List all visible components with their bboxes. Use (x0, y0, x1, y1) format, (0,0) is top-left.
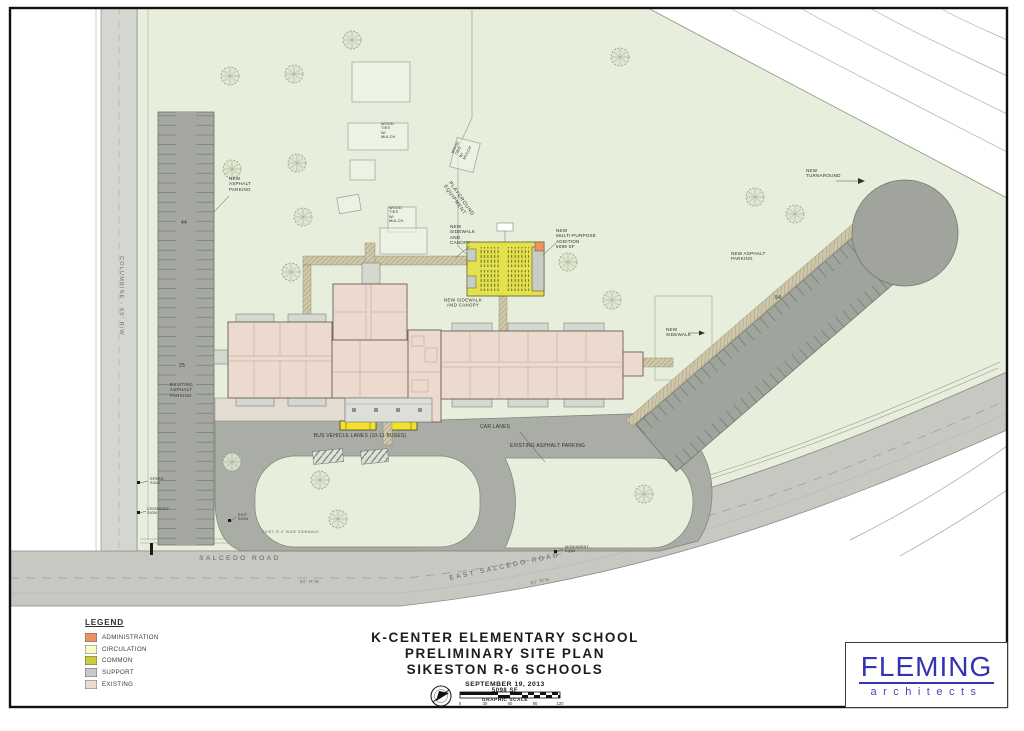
legend-item-support: SUPPORT (85, 667, 159, 679)
firm-logo: FLEMING architects (845, 642, 1008, 708)
legend: LEGEND ADMINISTRATION CIRCULATION COMMON… (85, 618, 159, 690)
common-swatch (85, 656, 97, 665)
legend-heading: LEGEND (85, 618, 159, 627)
exit-sign-label: EXIT SIGN (238, 513, 248, 522)
scale-bar-segments (460, 692, 560, 698)
columbine-road-label: COLUMBINE - 60' R/W (118, 256, 124, 336)
new-turnaround-label: NEW TURNAROUND (806, 168, 841, 179)
wood-ties-label-2: WOOD TIES W/ MULCH (389, 206, 404, 224)
legend-label: CIRCULATION (102, 646, 147, 653)
legend-item-administration: ADMINISTRATION (85, 632, 159, 644)
existing-swatch (85, 680, 97, 689)
drive-island-right (505, 458, 693, 548)
legend-label: COMMON (102, 657, 133, 664)
salcedo-road-label: SALCEDO ROAD (199, 555, 281, 563)
bus-canopy (345, 398, 432, 422)
svg-text:0: 0 (459, 701, 462, 706)
title-line-1: K-CENTER ELEMENTARY SCHOOL (371, 630, 639, 646)
site-plan-sheet: COLUMBINE - 60' R/W NEW ASPHALT PARKING … (0, 0, 1024, 731)
title-line-3: SIKESTON R-6 SCHOOLS (371, 662, 639, 678)
svg-text:60: 60 (508, 701, 513, 706)
legend-item-existing: EXISTING (85, 678, 159, 690)
firm-name: FLEMING (859, 653, 994, 684)
sidewalk-note-label: EXIST. 5'-0" WIDE SIDEWALK (262, 530, 319, 534)
new-asphalt-parking-east-label: NEW ASPHALT PARKING (731, 251, 766, 262)
wood-ties-label-1: WOOD TIES W/ MULCH (381, 122, 396, 140)
legend-item-circulation: CIRCULATION (85, 644, 159, 656)
new-sidewalk-canopy-south-label: NEW SIDEWALK AND CANOPY (444, 298, 482, 309)
stall-count-54: 54 (775, 296, 781, 302)
legend-label: EXISTING (102, 681, 133, 688)
bus-lanes-label: BUS VEHICLE LANES (10-11 BUSES) (314, 434, 407, 440)
firm-tagline: architects (870, 686, 982, 698)
title-line-2: PRELIMINARY SITE PLAN (371, 646, 639, 662)
legend-label: SUPPORT (102, 669, 134, 676)
new-asphalt-parking-west-label: NEW ASPHALT PARKING (229, 176, 251, 192)
new-sidewalk-label: NEW SIDEWALK (666, 327, 691, 338)
graphic-scale-bar: 0 30 60 90 120 (428, 684, 588, 710)
support-swatch (85, 668, 97, 677)
turnaround-circle (852, 180, 958, 286)
stall-count-44: 44 (181, 221, 187, 227)
svg-text:30: 30 (483, 701, 488, 706)
svg-text:120: 120 (557, 701, 565, 706)
stall-count-25: 25 (179, 364, 185, 370)
existing-asphalt-parking-center-label: EXISTING ASPHALT PARKING (510, 444, 585, 450)
circulation-swatch (85, 645, 97, 654)
monument-sign-label: MONUMENT SIGN (565, 545, 589, 554)
existing-asphalt-parking-west-label: EXISTING ASPHALT PARKING (170, 382, 193, 398)
svg-text:90: 90 (533, 701, 538, 706)
legend-label: ADMINISTRATION (102, 634, 159, 641)
salcedo-rw-label: 60' R/W (300, 579, 319, 584)
new-multipurpose-label: NEW MULTI-PURPOSE ADDITION 5099 SF (556, 228, 596, 250)
legend-item-common: COMMON (85, 655, 159, 667)
crossing-sign-label: CROSSING SIGN (147, 507, 169, 516)
administration-swatch (85, 633, 97, 642)
scale-tick-labels: 0 30 60 90 120 (459, 701, 564, 706)
car-lanes-label: CAR LANES (480, 425, 510, 431)
west-parking-lot (158, 112, 214, 545)
speed-sign-label: SPEED SIGN (150, 477, 164, 486)
new-sidewalk-canopy-north-label: NEW SIDEWALK AND CANOPY (450, 224, 475, 246)
north-arrow-icon (431, 686, 451, 706)
